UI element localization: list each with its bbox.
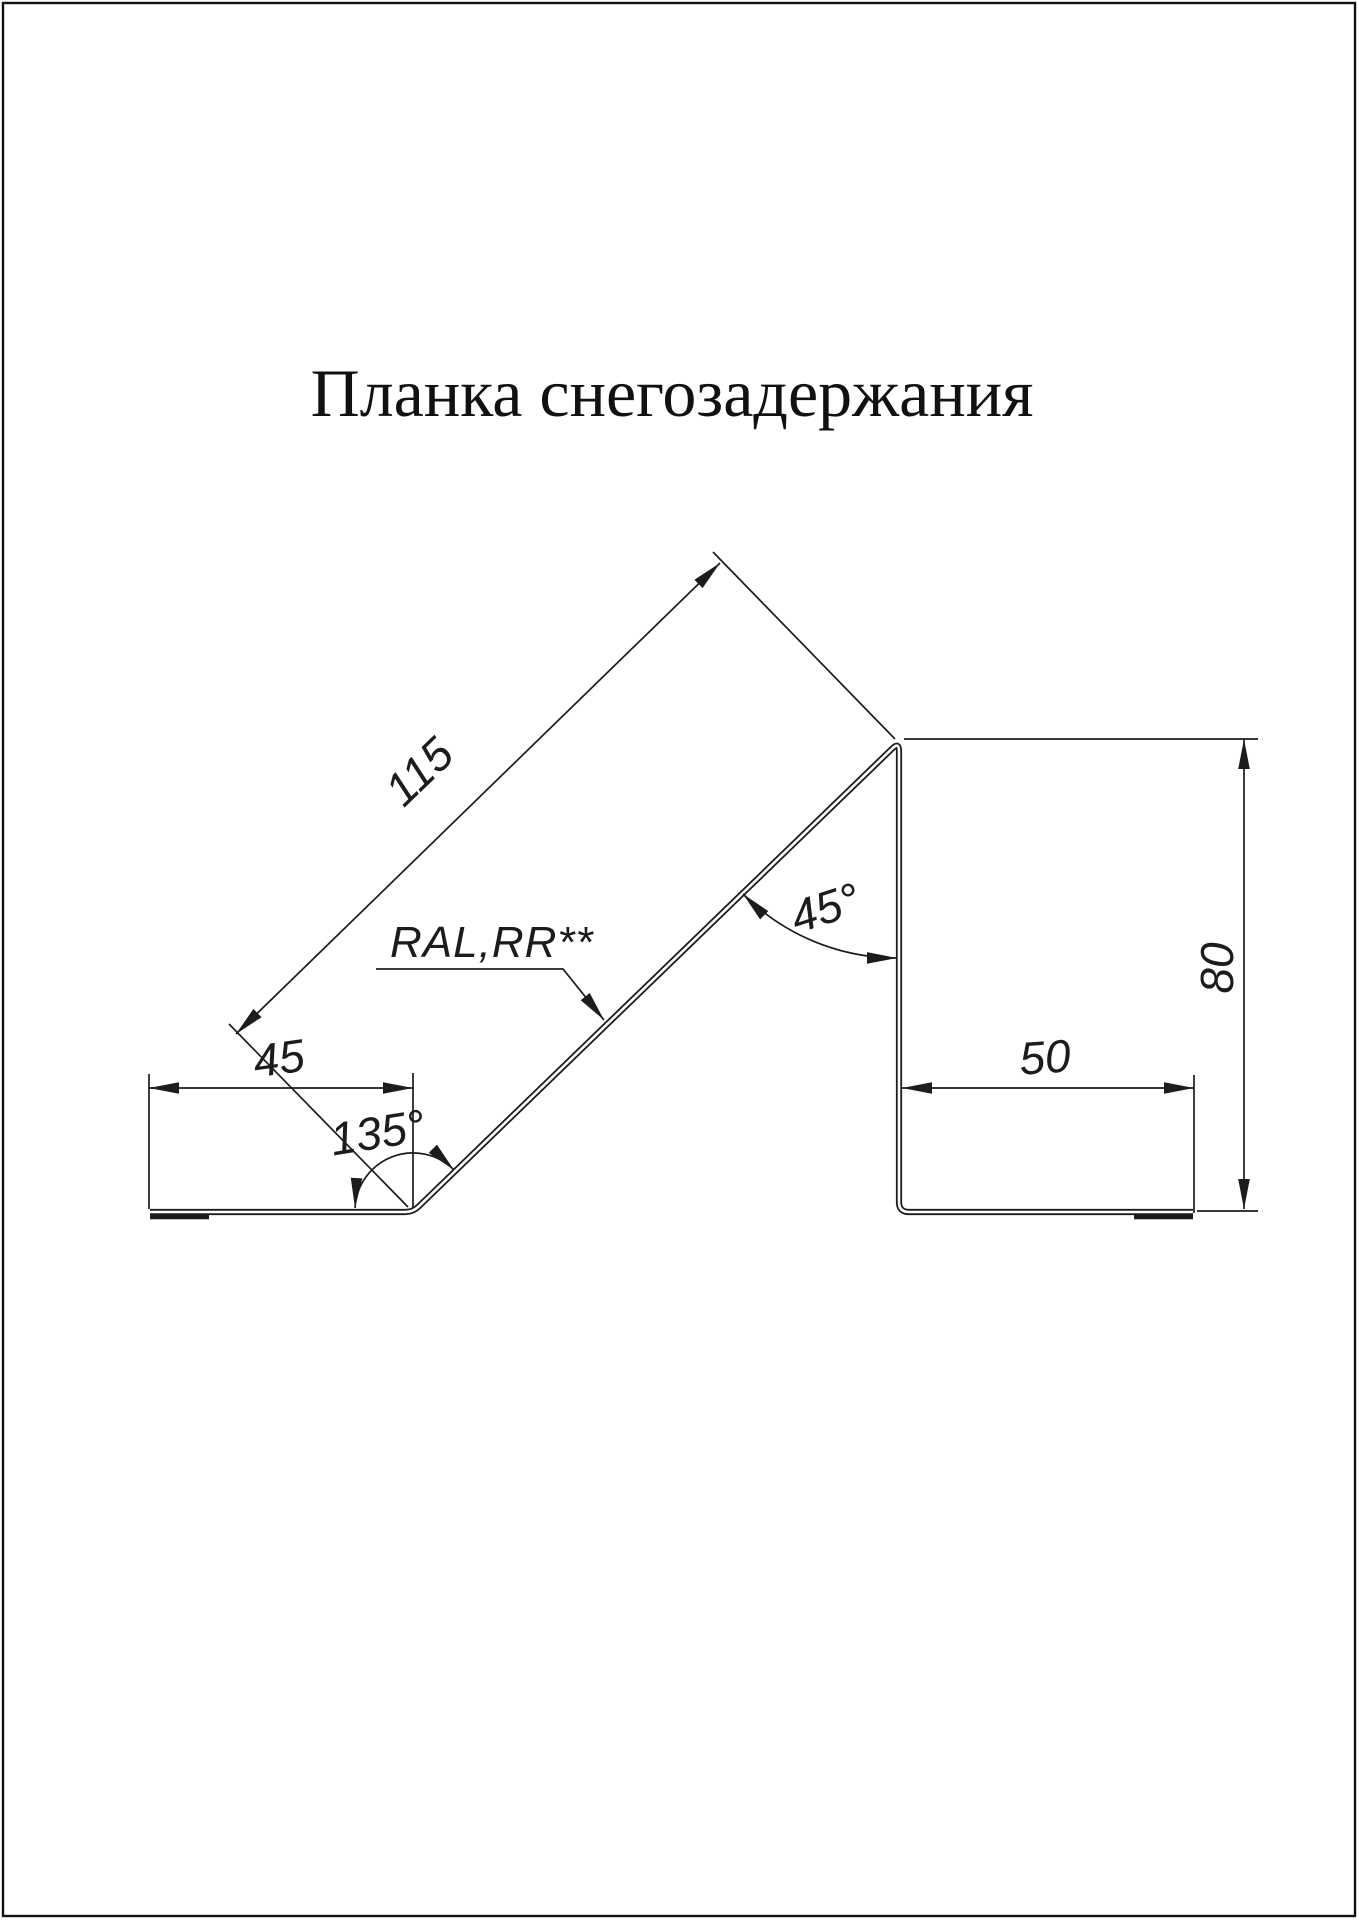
profile-outline	[150, 746, 1193, 1212]
dim-label-45: 45	[250, 1029, 308, 1088]
leader-line-coating	[376, 969, 604, 1020]
angle-arc-135	[355, 1153, 454, 1208]
dimension-lines	[149, 563, 1244, 1209]
drawing-sheet: Планка снегозадержания	[0, 0, 1359, 1920]
dim-label-115: 115	[374, 727, 463, 816]
page-border	[3, 3, 1355, 1916]
coating-label: RAL,RR**	[390, 918, 594, 967]
dim-label-50: 50	[1018, 1029, 1073, 1084]
angle-label-45: 45°	[784, 872, 866, 943]
profile-cross-section	[150, 746, 1193, 1217]
extension-lines	[149, 552, 1258, 1213]
page-title: Планка снегозадержания	[311, 355, 1034, 431]
extension-line-115-top	[713, 552, 895, 739]
dimension-labels: 115 45 135° 45° 50 80 RAL,RR**	[250, 727, 1243, 1165]
dim-label-80: 80	[1191, 942, 1243, 994]
drawing-canvas: Планка снегозадержания	[0, 0, 1359, 1920]
profile-outline-gap	[150, 746, 1193, 1212]
